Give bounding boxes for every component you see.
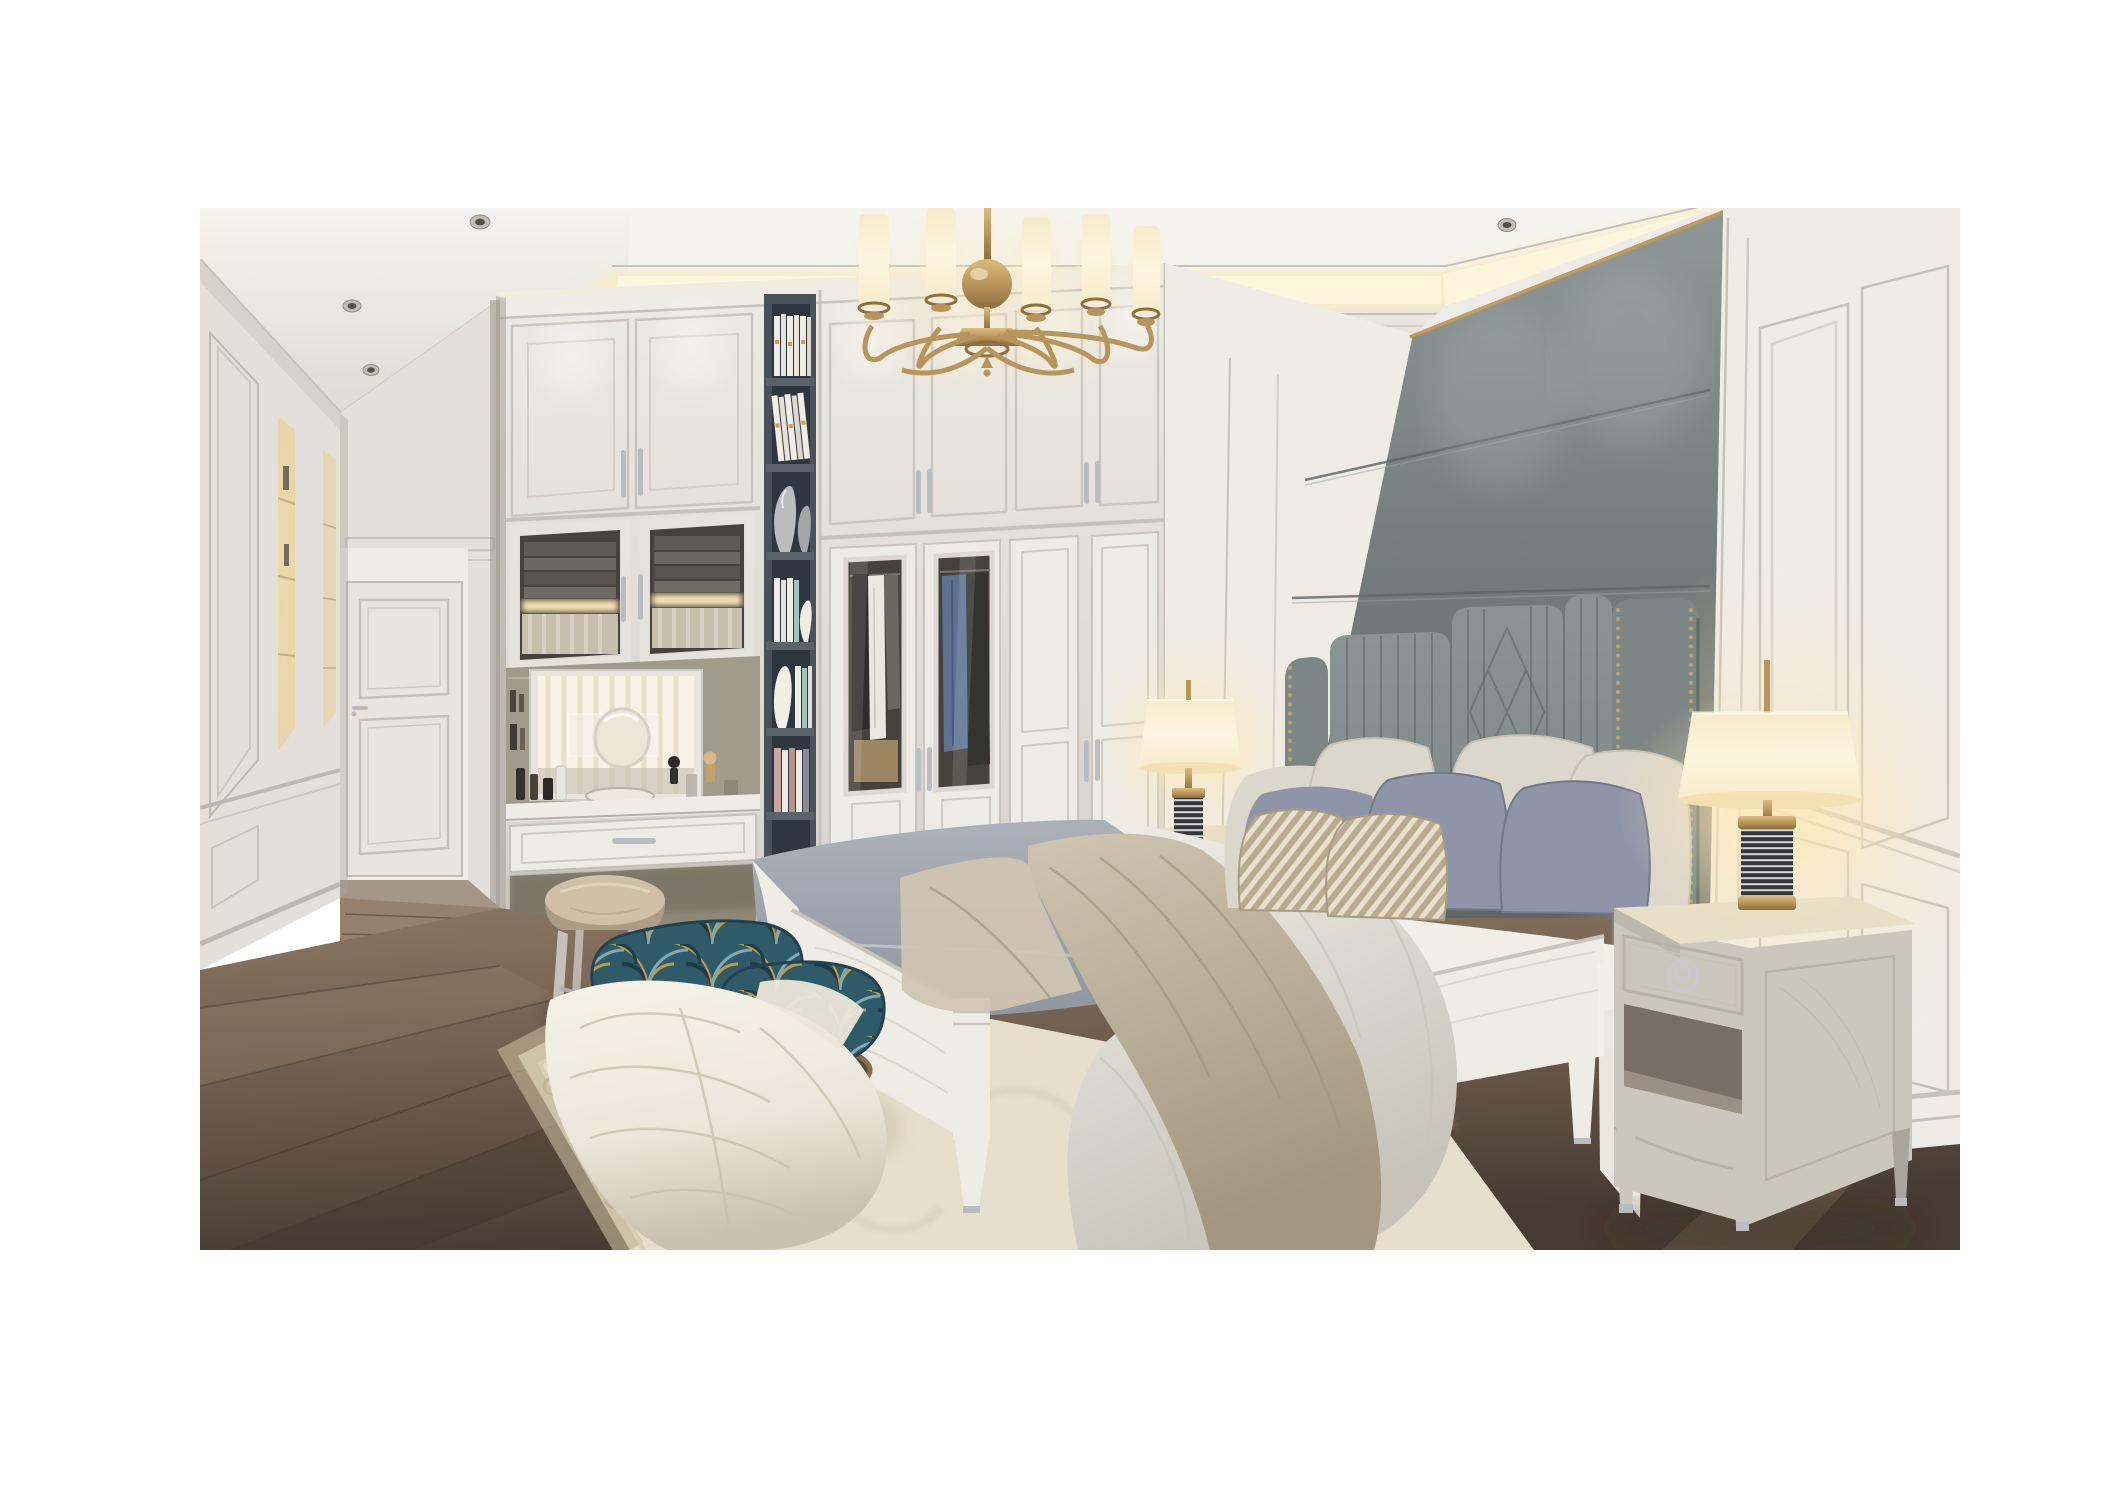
lamp-shade	[1678, 713, 1862, 800]
chandelier-stem	[984, 208, 991, 260]
bookshelf-column	[764, 294, 816, 934]
ribbed-lamp-base	[1741, 829, 1793, 899]
door-handle	[352, 706, 368, 710]
chandelier-sphere	[962, 259, 1012, 309]
cabinet-handle	[638, 448, 643, 496]
lamp-shade	[1139, 700, 1241, 768]
drawer-handle	[612, 838, 656, 844]
foot-post	[953, 998, 990, 1140]
books-6	[774, 748, 809, 812]
cabinet-handle	[621, 450, 626, 498]
lamp-stem	[1185, 768, 1192, 790]
hall-door	[340, 548, 468, 880]
bedroom-render-photo	[200, 208, 1960, 1250]
round-makeup-mirror	[595, 709, 649, 767]
bedroom-scene	[200, 208, 1960, 1250]
hallway	[340, 300, 500, 970]
vanity-hutch	[506, 656, 760, 822]
page-background	[0, 0, 2127, 1496]
books-top	[774, 314, 811, 376]
pillow-striped-2	[1326, 814, 1447, 920]
cabinet-light-strip	[522, 600, 618, 612]
